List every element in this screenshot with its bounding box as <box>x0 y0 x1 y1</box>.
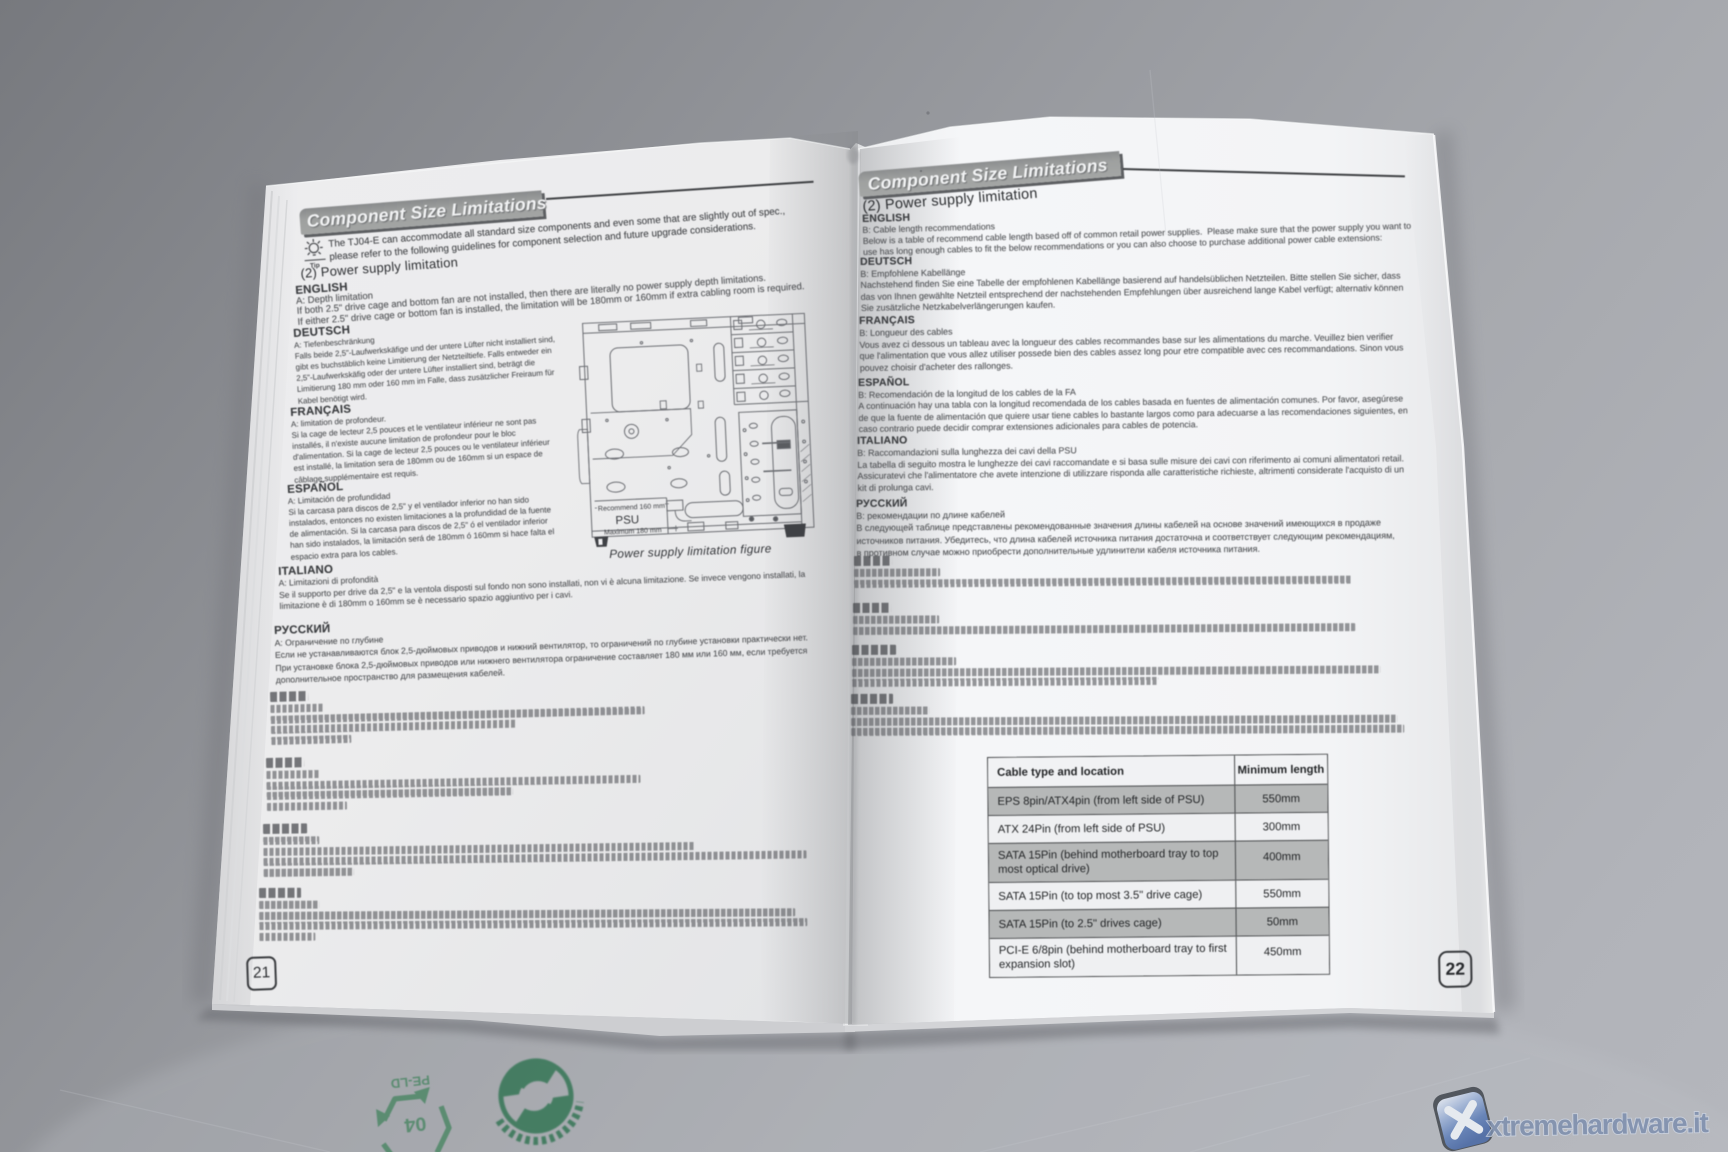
svg-text:04: 04 <box>403 1112 427 1136</box>
svg-text:xtremehardware.it: xtremehardware.it <box>1487 1107 1709 1142</box>
svg-text:PE-LD: PE-LD <box>390 1072 431 1091</box>
